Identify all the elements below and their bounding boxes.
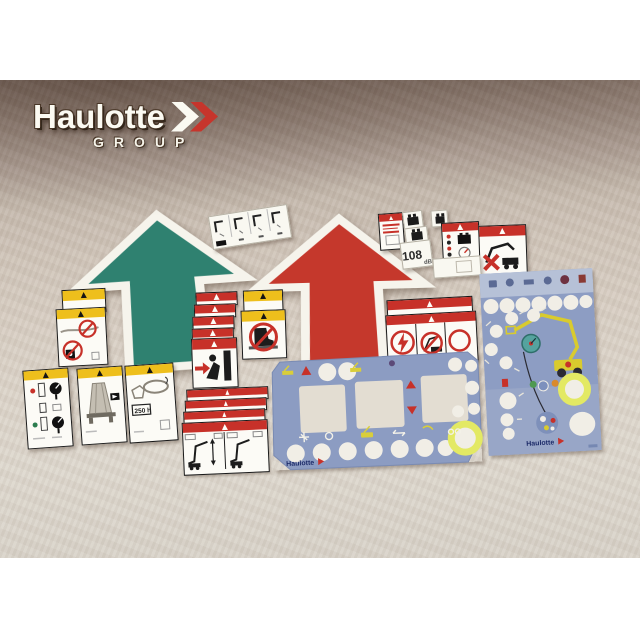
haulotte-logo: Haulotte GROUP [33, 100, 218, 150]
gauge-instruction-label [22, 367, 73, 449]
estop-ring [451, 424, 480, 453]
no-step-label [241, 309, 288, 360]
ground-control-panel-sticker: Haulotte [270, 352, 483, 471]
warning-triangle-icon [146, 366, 152, 372]
platform-control-panel-sticker: Haulotte [479, 268, 601, 456]
photo-page: Haulotte GROUP [0, 0, 640, 640]
warning-triangle-icon [210, 318, 216, 324]
warning-triangle-icon [42, 371, 48, 377]
no-boom-operation-sticker [478, 224, 528, 278]
warning-triangle-icon [81, 292, 87, 298]
blank-rectangle-sticker [432, 255, 481, 278]
anchor-pictograms [57, 317, 104, 364]
warning-triangle-icon [426, 300, 432, 306]
platform-load-label [76, 365, 127, 445]
warning-triangle-icon [96, 369, 102, 375]
tablecloth-backdrop: Haulotte GROUP [0, 80, 640, 558]
warning-triangle-icon [224, 401, 228, 406]
platform-pictogram [78, 376, 124, 441]
crush-hazard-label-stack [189, 291, 238, 388]
warning-triangle-icon [213, 294, 219, 300]
warning-triangle-icon [225, 390, 229, 395]
warning-triangle-icon [388, 215, 392, 219]
logo-group-text: GROUP [93, 134, 218, 150]
outreach-diagrams [183, 429, 267, 472]
estop-ring [561, 376, 588, 403]
warning-triangle-icon [210, 330, 216, 336]
service-pictograms: 250 h [126, 373, 175, 439]
panel-brand-text: Haulotte [526, 439, 554, 447]
prohibition-icon [449, 330, 470, 351]
fuel-icon [502, 379, 508, 387]
boom-outreach-label [182, 419, 270, 476]
logo-brand-text: Haulotte [33, 100, 165, 133]
service-250h-label: 250 h [124, 362, 178, 443]
noise-level-sticker: 108 dB [399, 239, 433, 270]
battery-icon [407, 217, 419, 226]
no-step-label-pair [240, 289, 286, 358]
warning-band [62, 289, 104, 301]
part-number-mark [588, 444, 597, 447]
warning-triangle-icon [428, 315, 434, 321]
no-step-pictogram [242, 320, 284, 355]
warning-triangle-icon [211, 341, 217, 347]
no-boom-pictogram [479, 235, 523, 273]
logo-row: Haulotte [33, 100, 218, 133]
noise-value: 108 [401, 248, 422, 262]
warning-triangle-icon [222, 412, 226, 417]
warning-triangle-icon [212, 306, 218, 312]
warning-triangle-icon [457, 224, 463, 230]
warning-triangle-icon [260, 313, 266, 319]
stacked-label-edge [243, 289, 284, 311]
crush-hazard-label [191, 337, 239, 389]
gauge-pictograms [24, 378, 70, 445]
noise-unit: dB [424, 259, 433, 266]
warning-triangle-icon [222, 423, 228, 429]
panel-brand-text: Haulotte [286, 460, 314, 468]
warning-triangle-icon [499, 228, 505, 234]
faint-box [456, 260, 473, 273]
warning-triangle-icon [78, 310, 84, 316]
warning-triangle-icon [260, 293, 266, 299]
boom-outreach-label-stack [180, 386, 270, 476]
notice-box [385, 234, 400, 245]
no-wash-anchor-warning-label [56, 307, 109, 368]
crush-pictogram [192, 348, 235, 384]
service-interval-text: 250 h [134, 407, 151, 415]
